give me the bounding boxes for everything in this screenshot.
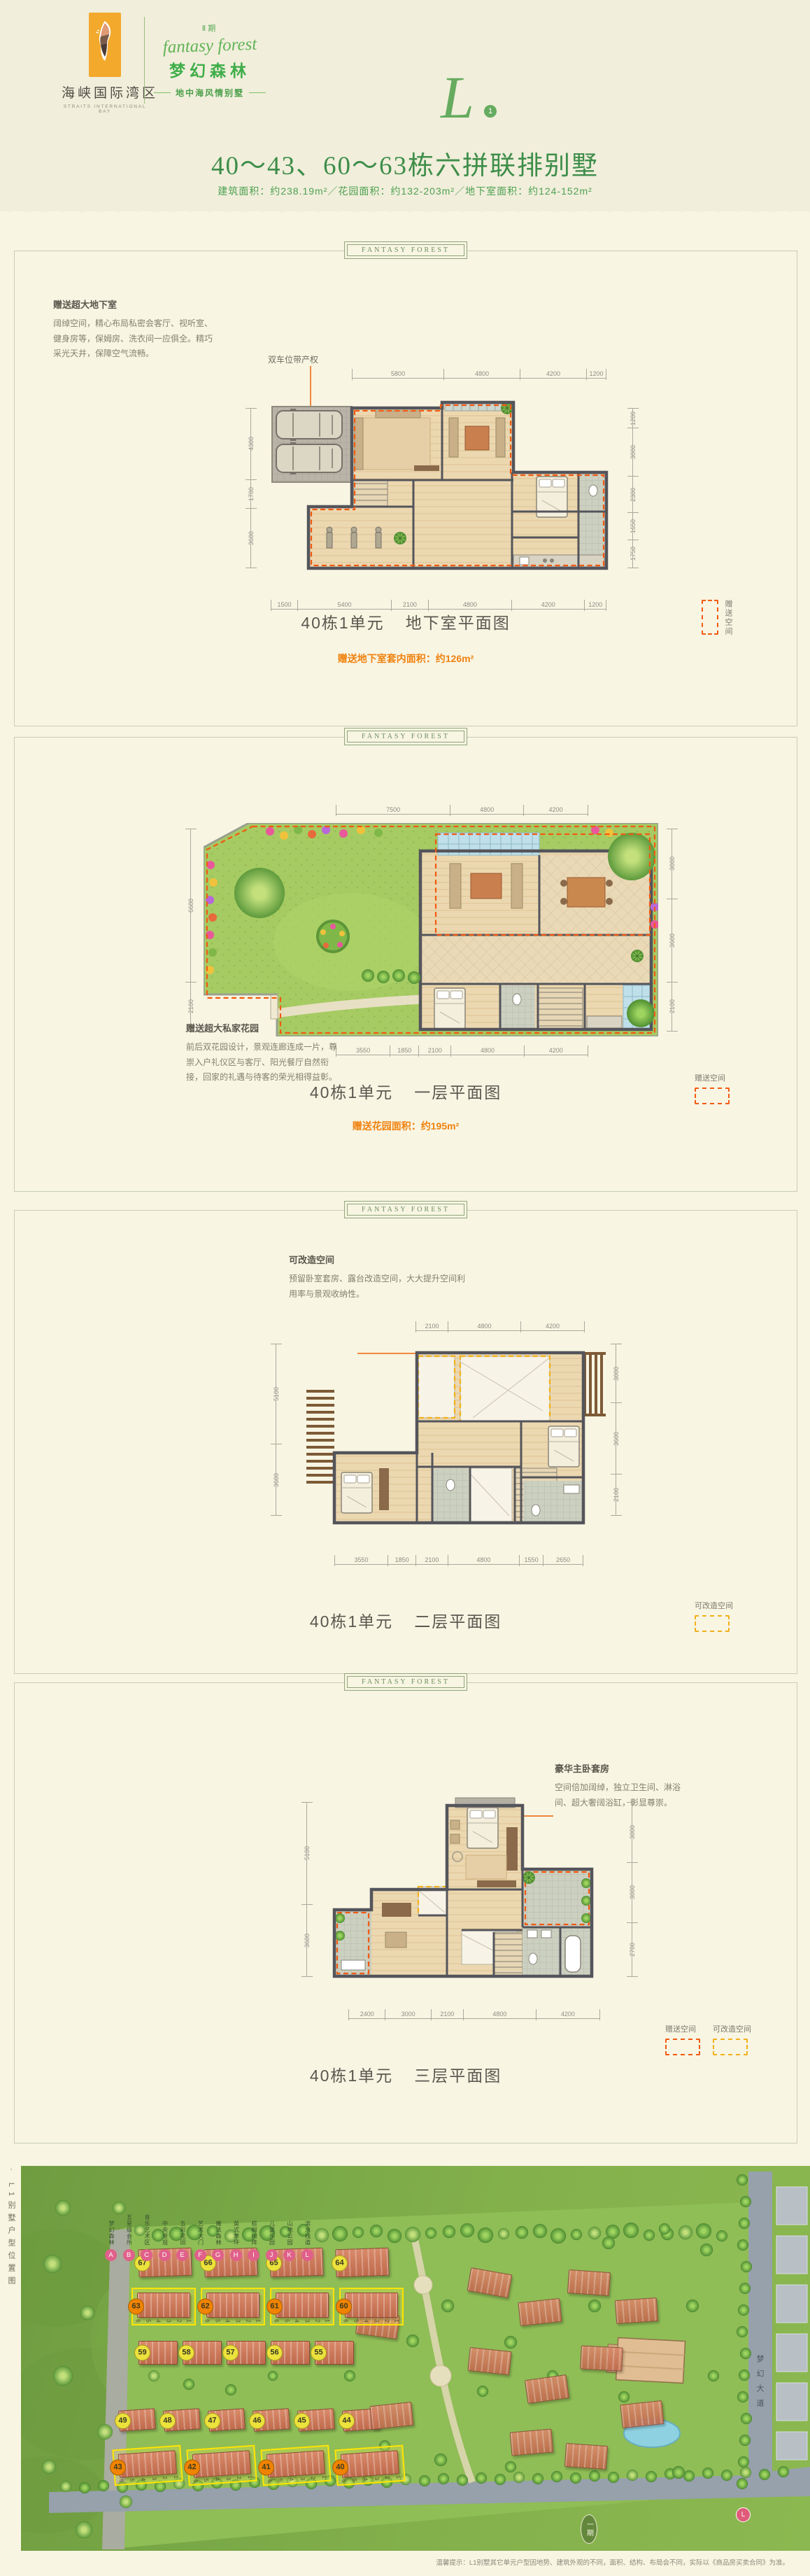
fantasy-forest-badge: FANTASY FOREST: [344, 241, 467, 259]
brochure-page: 海峡国际湾区 STRAITS INTERNATIONAL BAY Ⅱ期 fant…: [0, 0, 810, 2576]
page-subtitle: 建筑面积：约238.19m²／花园面积：约132-203m²／地下室面积：约12…: [0, 184, 810, 198]
first-floor-plan-drawing: [204, 823, 658, 1036]
third-floor-plan: 24003000210048004200 51003600 3000300027…: [260, 1781, 651, 2047]
building: [564, 2443, 608, 2470]
building-57: 57: [227, 2341, 266, 2365]
legend-label: 可改造空间: [713, 2023, 751, 2034]
building-40: 65432140: [334, 2445, 405, 2486]
project-name: 梦幻森林: [154, 57, 266, 81]
annotation-basement: 赠送超大地下室 阔绰空间，精心布局私密会客厅、视听室、健身房等，保姆房、洗衣间一…: [53, 297, 218, 362]
caption-floor: 一层平面图: [414, 1083, 502, 1102]
gift-area-note: 赠送花园面积：约195m²: [15, 1119, 797, 1133]
building-62: 65432162: [201, 2288, 265, 2325]
legend-label: 可改造空间: [695, 1600, 733, 1611]
building-46: 46: [253, 2408, 290, 2432]
legend-row: 赠送空间 可改造空间: [665, 2023, 751, 2055]
legend-gift-space: 赠送空间: [665, 2023, 700, 2055]
plan-caption: 40栋1单元三层平面图: [15, 2062, 797, 2086]
dims-top: 5800480042001200: [352, 369, 606, 380]
gift-dashed-swatch: [702, 600, 718, 635]
tagline-dash-right: [249, 92, 266, 93]
dims-left: 66002100: [185, 829, 197, 1032]
fantasy-forest-badge: FANTASY FOREST: [344, 1673, 467, 1691]
caption-unit: 40栋1单元: [301, 614, 384, 632]
brand-name-en: STRAITS INTERNATIONAL BAY: [62, 104, 148, 114]
building: [580, 2345, 623, 2371]
building: [567, 2269, 611, 2296]
page-title: 40～43、60～63栋六拼联排别墅: [0, 144, 810, 182]
building-63: 65432163: [132, 2288, 196, 2325]
header-divider: [144, 17, 145, 104]
building-47: 47: [208, 2408, 246, 2432]
dims-left: 430017003600: [246, 408, 257, 568]
building-56: 56: [271, 2341, 310, 2365]
building: [525, 2374, 569, 2404]
legend-gift-space: 赠送空间: [702, 600, 734, 636]
dims-bottom: 355018502100480015502650: [334, 1555, 583, 1566]
emblem-letter: L: [441, 64, 474, 131]
legend-marker-A: 梦幻森林A: [105, 2183, 118, 2261]
building: [518, 2298, 562, 2326]
legend-marker-F: 艺术大门F: [194, 2183, 207, 2261]
legend-marker-L: 滨水栈道L: [301, 2183, 314, 2261]
fantasy-forest-badge: FANTASY FOREST: [344, 728, 467, 745]
building: [467, 2267, 513, 2298]
building-64: 64: [335, 2248, 389, 2278]
dims-bottom: 35501850210048004200: [336, 1046, 588, 1057]
annotation-body: 预留卧室套房、露台改造空间，大大提升空间利用率与景观收纳性。: [289, 1272, 467, 1302]
legend-convertible-space: 可改造空间: [695, 1600, 733, 1632]
gift-dashed-swatch: [665, 2039, 700, 2055]
legend-label: 赠送空间: [723, 600, 734, 636]
caption-unit: 40栋1单元: [310, 2067, 393, 2085]
basement-floor-plan-drawing: [271, 398, 634, 573]
building-cluster-layer: 6766656465432163654321626543216165432160…: [21, 2166, 810, 2551]
plan-caption: 40栋1单元一层平面图: [15, 1079, 797, 1103]
brand-name: 海峡国际湾区: [62, 83, 148, 101]
second-floor-plan: 210048004200 355018502100480015502650 51…: [246, 1316, 637, 1582]
caption-unit: 40栋1单元: [310, 1612, 393, 1631]
annotation-title: 可改造空间: [289, 1253, 467, 1266]
panel-first-floor: FANTASY FOREST 750048004200 355018502100…: [14, 737, 797, 1192]
building: [620, 2400, 664, 2428]
dims-top: 750048004200: [336, 805, 588, 816]
annotation-body: 阔绰空间，精心布局私密会客厅、视听室、健身房等，保姆房、洗衣间一应俱全。精巧采光…: [53, 316, 218, 362]
caption-floor: 地下室平面图: [406, 614, 511, 632]
basement-plan: 5800480042001200 15005400210048004200120…: [246, 356, 679, 636]
legend-label: 赠送空间: [695, 1072, 730, 1083]
annotation-title: 赠送超大私家花园: [186, 1021, 339, 1034]
dims-left: 51003600: [301, 1802, 313, 1977]
legend-marker-B: 五星级会所B: [123, 2183, 136, 2261]
plan-caption: 40栋1单元二层平面图: [15, 1608, 797, 1632]
island-logo-icon: [89, 13, 121, 77]
building-42: 65432142: [186, 2445, 257, 2486]
convertible-dashed-swatch: [695, 1615, 730, 1632]
dims-left: 51003600: [271, 1344, 282, 1516]
phase-one-label: 一期: [581, 2514, 597, 2544]
project-tagline: 地中海风情别墅: [154, 87, 266, 99]
dims-right: 300036002100: [667, 829, 678, 1032]
phase-label: Ⅱ期: [154, 22, 266, 34]
fantasy-forest-badge: FANTASY FOREST: [344, 1201, 467, 1218]
building: [369, 2402, 413, 2430]
building: [615, 2297, 658, 2324]
panel-third-floor: FANTASY FOREST 豪华主卧套房 空间倍加阔绰，独立卫生间、淋浴间、超…: [14, 1682, 797, 2144]
caption-floor: 二层平面图: [414, 1612, 502, 1631]
sitemap-side-caption: · L1别墅户型位置图: [6, 2168, 17, 2549]
gift-area-note: 赠送地下室套内面积：约126m²: [15, 652, 797, 666]
annotation-convertible: 可改造空间 预留卧室套房、露台改造空间，大大提升空间利用率与景观收纳性。: [289, 1253, 467, 1302]
project-block: Ⅱ期 fantasy forest 梦幻森林 地中海风情别墅: [154, 22, 266, 99]
master-site-plan: 6766656465432163654321626543216165432160…: [21, 2166, 810, 2551]
third-floor-plan-drawing: [319, 1792, 599, 1981]
legend-marker-G: 魔法森林G: [212, 2183, 225, 2261]
building: [467, 2347, 511, 2375]
legend-marker-J: 儿童乐园J: [266, 2183, 278, 2261]
brand-logo: 海峡国际湾区 STRAITS INTERNATIONAL BAY: [62, 13, 148, 114]
annotation-title: 赠送超大地下室: [53, 297, 218, 311]
disclaimer-text: 温馨提示：L1别墅其它单元户型因地势、建筑外观的不同，面积、结构、布局会不同，实…: [436, 2557, 789, 2567]
building-49: 49: [118, 2408, 156, 2432]
panel-second-floor: FANTASY FOREST 可改造空间 预留卧室套房、露台改造空间，大大提升空…: [14, 1210, 797, 1674]
caption-unit: 40栋1单元: [310, 1083, 393, 1102]
legend-marker-E: 五彩花田E: [176, 2183, 189, 2261]
legend-marker-I: 棕榈树阵I: [248, 2183, 260, 2261]
building-60: 65432160: [339, 2288, 404, 2325]
project-script-name: fantasy forest: [154, 34, 267, 58]
tagline-text: 地中海风情别墅: [176, 87, 244, 99]
building-58: 58: [183, 2341, 222, 2365]
caption-floor: 三层平面图: [414, 2067, 502, 2085]
building: [510, 2428, 554, 2456]
building-59: 59: [138, 2341, 178, 2365]
legend-label: 赠送空间: [665, 2023, 700, 2034]
road-name-label: 梦幻大道: [754, 2355, 765, 2414]
panel-basement: FANTASY FOREST 赠送超大地下室 阔绰空间，精心布局私密会客厅、视听…: [14, 251, 797, 726]
emblem-index: 1: [484, 105, 497, 118]
legend-marker-D: 中央景观D: [159, 2183, 171, 2261]
legend-marker-K: 山地公园K: [283, 2183, 296, 2261]
annotation-garden: 赠送超大私家花园 前后双花园设计，景观连廊连成一片，尊崇入户礼仪区与客厅、阳光餐…: [186, 1021, 339, 1085]
tagline-dash-left: [154, 92, 171, 93]
dims-bottom: 24003000210048004200: [348, 2009, 600, 2020]
legend-marker-C: 音乐艺术区C: [141, 2183, 153, 2261]
building-43: 65432143: [112, 2445, 183, 2486]
gift-dashed-swatch: [695, 1088, 730, 1104]
dims-top: 210048004200: [415, 1321, 585, 1332]
building-48: 48: [163, 2408, 201, 2432]
building-61: 65432161: [270, 2288, 334, 2325]
annotation-title: 豪华主卧套房: [555, 1761, 695, 1775]
map-point-marker: L: [736, 2507, 751, 2522]
product-emblem: L 1: [441, 73, 518, 136]
plan-caption: 40栋1单元地下室平面图: [15, 610, 797, 633]
dims-right: 300030002700: [627, 1802, 638, 1977]
second-floor-plan-drawing: [305, 1348, 606, 1530]
legend-gift-space: 赠送空间: [695, 1072, 730, 1104]
building-55: 55: [315, 2341, 354, 2365]
convertible-dashed-swatch: [713, 2039, 748, 2055]
dims-right: 300036002100: [611, 1344, 622, 1516]
building-45: 45: [297, 2408, 335, 2432]
legend-convertible-space: 可改造空间: [713, 2023, 751, 2055]
legend-marker-H: 英式草坪H: [230, 2183, 243, 2261]
building-41: 65432141: [260, 2445, 331, 2486]
